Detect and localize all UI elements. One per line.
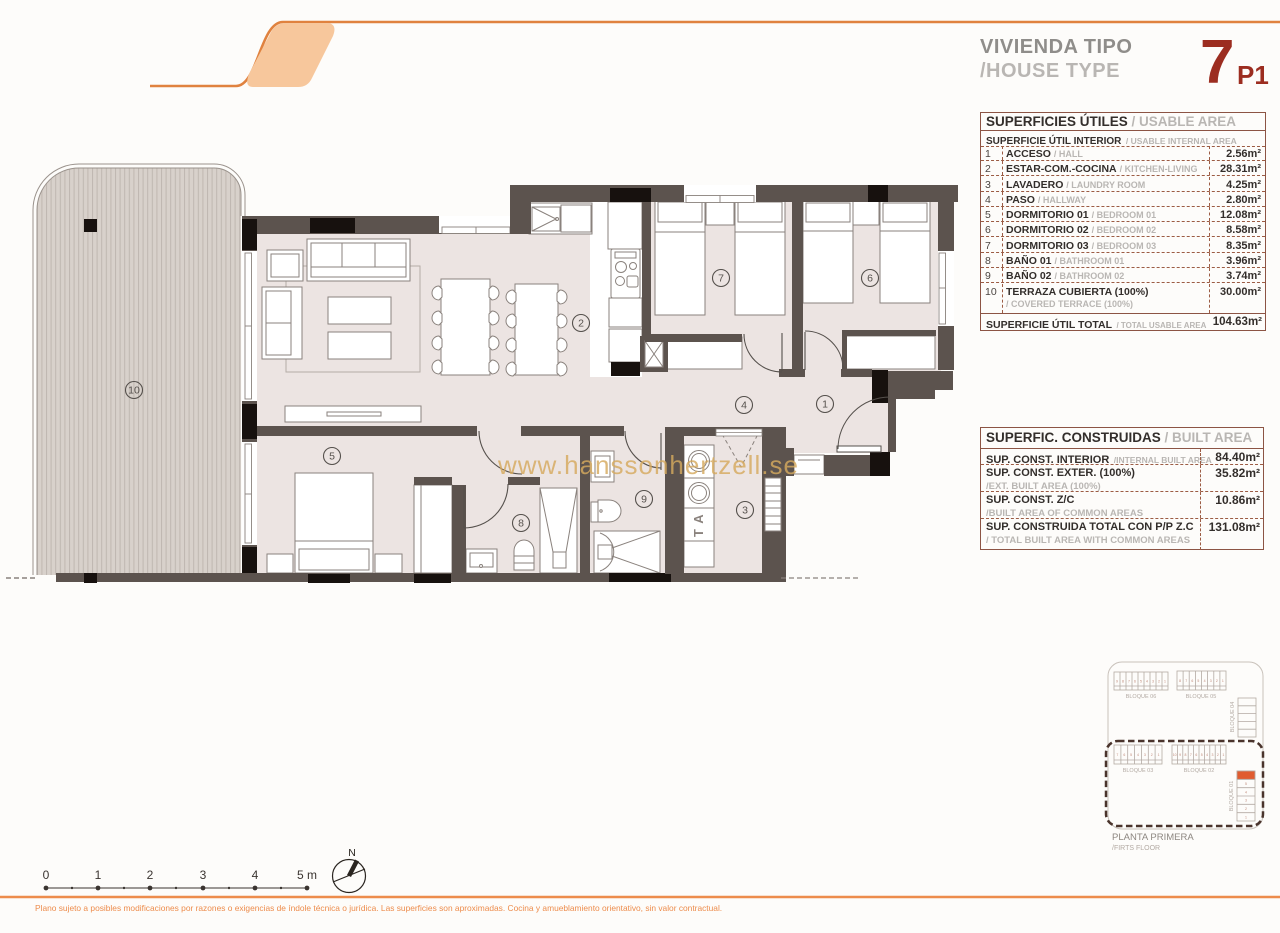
svg-text:2: 2 xyxy=(1245,807,1247,811)
svg-text:5: 5 xyxy=(1197,679,1199,683)
svg-text:3: 3 xyxy=(200,868,207,882)
svg-text:4: 4 xyxy=(1146,680,1148,684)
svg-text:5: 5 xyxy=(1130,753,1132,757)
svg-text:7: 7 xyxy=(1116,753,1118,757)
svg-text:8: 8 xyxy=(1179,679,1181,683)
svg-text:3: 3 xyxy=(1144,753,1146,757)
svg-text:2: 2 xyxy=(147,868,154,882)
svg-text:3: 3 xyxy=(1210,679,1212,683)
svg-text:7: 7 xyxy=(1128,680,1130,684)
svg-text:BLOQUE 03: BLOQUE 03 xyxy=(1123,768,1154,774)
svg-text:8: 8 xyxy=(518,518,524,530)
svg-text:4: 4 xyxy=(252,868,259,882)
svg-text:4: 4 xyxy=(741,400,747,412)
svg-text:5: 5 xyxy=(1245,782,1247,786)
svg-text:0: 0 xyxy=(43,868,50,882)
svg-text:6: 6 xyxy=(1123,753,1125,757)
svg-text:5 m: 5 m xyxy=(297,868,317,882)
svg-text:3: 3 xyxy=(742,505,748,517)
svg-text:5: 5 xyxy=(329,451,335,463)
svg-text:6: 6 xyxy=(867,273,873,285)
svg-text:PLANTA PRIMERA: PLANTA PRIMERA xyxy=(1112,832,1194,843)
svg-text:A: A xyxy=(691,514,706,524)
svg-text:N: N xyxy=(348,847,356,859)
svg-text:2: 2 xyxy=(1216,679,1218,683)
svg-text:4: 4 xyxy=(1206,753,1208,757)
svg-text:2: 2 xyxy=(578,318,584,330)
svg-text:4: 4 xyxy=(1245,790,1247,794)
svg-text:9: 9 xyxy=(641,494,647,506)
svg-text:2: 2 xyxy=(1217,753,1219,757)
svg-text:9: 9 xyxy=(1179,753,1181,757)
svg-text:1: 1 xyxy=(1222,679,1224,683)
svg-text:8: 8 xyxy=(1122,680,1124,684)
svg-text:www.hanssonhertzell.se: www.hanssonhertzell.se xyxy=(497,450,799,480)
svg-text:4: 4 xyxy=(1137,753,1139,757)
svg-text:5: 5 xyxy=(1201,753,1203,757)
svg-text:7: 7 xyxy=(1185,679,1187,683)
svg-text:7: 7 xyxy=(718,273,724,285)
svg-text:10: 10 xyxy=(128,385,140,397)
svg-text:1: 1 xyxy=(1164,680,1166,684)
svg-text:7: 7 xyxy=(1190,753,1192,757)
svg-text:T: T xyxy=(691,529,706,537)
svg-text:6: 6 xyxy=(1191,679,1193,683)
svg-text:3: 3 xyxy=(1245,799,1247,803)
svg-text:6: 6 xyxy=(1134,680,1136,684)
svg-text:BLOQUE 04: BLOQUE 04 xyxy=(1230,702,1236,733)
svg-text:2: 2 xyxy=(1158,680,1160,684)
svg-text:BLOQUE 05: BLOQUE 05 xyxy=(1186,694,1217,700)
svg-text:1: 1 xyxy=(822,399,828,411)
svg-text:1: 1 xyxy=(1245,815,1247,819)
svg-text:2: 2 xyxy=(1151,753,1153,757)
svg-text:BLOQUE 01: BLOQUE 01 xyxy=(1229,781,1235,812)
svg-text:5: 5 xyxy=(1140,680,1142,684)
svg-text:/FIRTS FLOOR: /FIRTS FLOOR xyxy=(1112,845,1160,852)
svg-text:10: 10 xyxy=(1173,753,1177,757)
svg-text:9: 9 xyxy=(1116,680,1118,684)
svg-text:BLOQUE 06: BLOQUE 06 xyxy=(1126,694,1157,700)
svg-text:1: 1 xyxy=(1158,753,1160,757)
svg-text:4: 4 xyxy=(1204,679,1206,683)
svg-text:3: 3 xyxy=(1152,680,1154,684)
svg-text:BLOQUE 02: BLOQUE 02 xyxy=(1184,768,1215,774)
svg-text:1: 1 xyxy=(95,868,102,882)
svg-text:8: 8 xyxy=(1185,753,1187,757)
svg-text:6: 6 xyxy=(1195,753,1197,757)
svg-text:3: 3 xyxy=(1212,753,1214,757)
svg-text:1: 1 xyxy=(1222,753,1224,757)
